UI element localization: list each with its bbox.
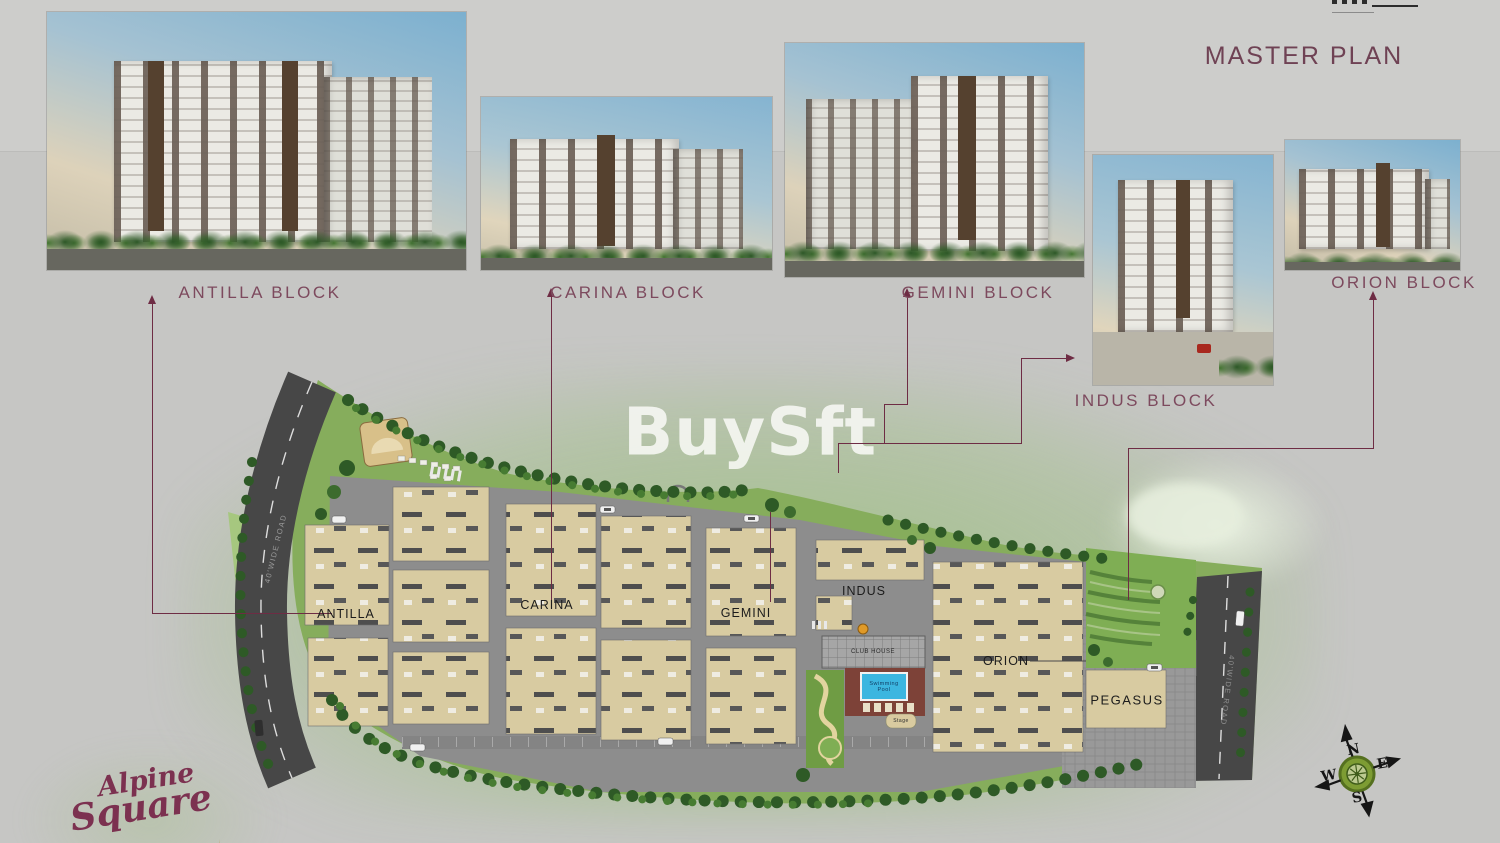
facade-stripe [1176, 180, 1190, 318]
facade-stripe [597, 135, 614, 246]
foliage [47, 226, 466, 252]
orion-connector-line [1128, 448, 1129, 600]
foliage [785, 237, 1084, 263]
partial-logo-mark [1352, 0, 1357, 4]
partial-logo-underline [1372, 5, 1418, 7]
indus-block-label: INDUS BLOCK [1075, 391, 1218, 411]
plan-label-swimming-pool: Swimming Pool [867, 681, 901, 693]
partial-logo-mark [1362, 0, 1367, 4]
plan-label-antilla: ANTILLA [317, 607, 375, 621]
partial-logo-underline [1332, 12, 1374, 13]
building-render [1425, 179, 1450, 249]
orion-connector-line [1373, 299, 1374, 449]
foliage [1285, 248, 1460, 264]
facade-stripe [958, 76, 976, 240]
photo-ground [1285, 262, 1460, 270]
photo-ground [481, 258, 772, 270]
master-plan-page: BuySft [0, 0, 1500, 843]
building-render [510, 139, 679, 250]
antilla-connector-line [152, 613, 332, 614]
indus-connector-line [1021, 358, 1022, 444]
compass-north: N [1345, 741, 1361, 759]
antilla-photo [47, 12, 466, 270]
indus-photo [1093, 155, 1273, 385]
plan-label-pegasus: PEGASUS [1090, 693, 1163, 708]
carina-block-label: CARINA BLOCK [550, 283, 706, 303]
gemini-connector-line [907, 296, 908, 404]
indus-connector-line [1021, 358, 1067, 359]
right-garden [1086, 548, 1196, 668]
indus-connector-line [838, 443, 839, 473]
facade-stripe [148, 61, 165, 231]
building-render [1299, 169, 1429, 250]
plan-label-carina: CARINA [520, 598, 573, 612]
plan-label-indus: INDUS [842, 584, 886, 598]
indus-connector-line [838, 443, 1022, 444]
brand-logo: Alpine Square [65, 759, 214, 835]
antilla-connector-line [152, 303, 153, 613]
plan-label-orion: ORION [983, 654, 1029, 668]
orion-connector-line [1128, 448, 1374, 449]
gemini-connector-line [770, 512, 771, 602]
foliage [481, 240, 772, 260]
red-car [1197, 344, 1211, 353]
gemini-block-label: GEMINI BLOCK [902, 283, 1055, 303]
compass-west: W [1320, 767, 1338, 785]
antilla-arrow-icon [148, 295, 156, 304]
gemini-connector-line [884, 404, 885, 444]
partial-logo-mark [1332, 0, 1337, 4]
facade-stripe [282, 61, 299, 231]
plan-label-stage: Stage [893, 718, 909, 724]
plan-label-club-house: CLUB HOUSE [851, 649, 895, 655]
indus-arrow-icon [1066, 354, 1075, 362]
building-render [911, 76, 1049, 252]
carina-photo [481, 97, 772, 270]
antilla-block-label: ANTILLA BLOCK [179, 283, 342, 303]
gemini-connector-line [884, 404, 908, 405]
facade-stripe [1376, 163, 1390, 246]
foliage [1219, 351, 1273, 385]
photo-ground [47, 249, 466, 270]
photo-ground [785, 261, 1084, 277]
carina-connector-line [551, 296, 552, 600]
building-render [324, 77, 433, 242]
partial-logo-mark [1342, 0, 1347, 4]
building-render [806, 99, 914, 249]
orion-block-label: ORION BLOCK [1331, 273, 1477, 293]
orion-photo [1285, 140, 1460, 270]
gemini-photo [785, 43, 1084, 277]
plan-label-gemini: GEMINI [721, 606, 771, 620]
page-title: MASTER PLAN [1205, 42, 1403, 71]
building-render [673, 149, 743, 249]
